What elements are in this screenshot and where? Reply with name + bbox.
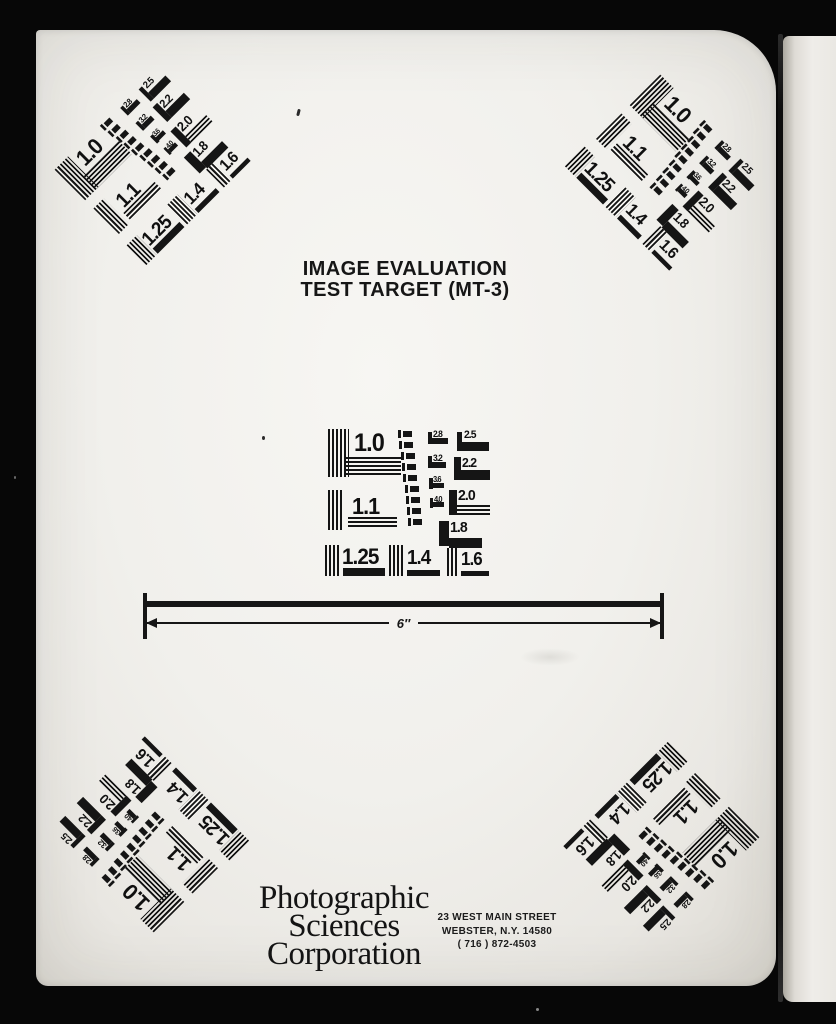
micro-target bbox=[401, 452, 404, 460]
address-line2: WEBSTER, N.Y. 14580 bbox=[397, 925, 597, 939]
micro-target bbox=[684, 147, 694, 157]
resolution-target-label: 2.8 bbox=[433, 430, 442, 439]
target-horizontal-stripes bbox=[462, 442, 489, 451]
address-line1: 23 WEST MAIN STREET bbox=[397, 911, 597, 925]
page-title-line2: TEST TARGET (MT-3) bbox=[205, 280, 605, 301]
scale-bar-arrow: 6″ bbox=[146, 616, 661, 630]
micro-target bbox=[407, 464, 416, 470]
micro-target bbox=[402, 463, 405, 471]
micro-target bbox=[408, 475, 417, 481]
micro-target bbox=[408, 518, 411, 526]
resolution-target-label: 1.6 bbox=[461, 550, 482, 568]
micro-target bbox=[166, 167, 176, 177]
micro-target bbox=[111, 124, 121, 134]
micro-target bbox=[405, 485, 408, 493]
target-horizontal-stripes bbox=[407, 570, 440, 576]
scale-bar-label: 6″ bbox=[389, 617, 418, 630]
target-vertical-stripes bbox=[439, 521, 449, 546]
company-address: 23 WEST MAIN STREET WEBSTER, N.Y. 14580 … bbox=[397, 911, 597, 952]
scan-speck bbox=[536, 1008, 539, 1011]
resolution-target-label: 2.2 bbox=[462, 456, 476, 469]
micro-target bbox=[672, 163, 682, 173]
resolution-target-label: 1.8 bbox=[450, 520, 467, 535]
page-title-line1: IMAGE EVALUATION bbox=[205, 259, 605, 280]
page-title: IMAGE EVALUATION TEST TARGET (MT-3) bbox=[205, 259, 605, 301]
target-horizontal-stripes bbox=[346, 457, 401, 477]
micro-target bbox=[410, 486, 419, 492]
resolution-target-label: 1.4 bbox=[407, 548, 430, 568]
micro-target bbox=[135, 142, 145, 152]
micro-target bbox=[691, 139, 701, 149]
test-pattern-center: 1.01.11.251.41.62.52.22.01.82.83.23.64.0 bbox=[325, 426, 493, 576]
resolution-target-label: 2.5 bbox=[464, 430, 476, 441]
micro-target bbox=[677, 861, 687, 871]
target-horizontal-stripes bbox=[461, 571, 489, 576]
micro-target bbox=[666, 171, 676, 181]
target-vertical-stripes bbox=[389, 545, 405, 576]
resolution-target-label: 4.0 bbox=[434, 496, 442, 504]
micro-target bbox=[151, 155, 161, 165]
micro-target bbox=[638, 831, 648, 841]
micro-target bbox=[119, 130, 129, 140]
micro-target bbox=[404, 442, 413, 448]
resolution-target-label: 1.1 bbox=[352, 495, 379, 518]
micro-target bbox=[662, 849, 672, 859]
scale-bar-line bbox=[146, 601, 661, 607]
micro-target bbox=[697, 131, 707, 141]
resolution-target-label: 1.0 bbox=[354, 431, 384, 456]
resolution-target-label: 1.25 bbox=[342, 546, 378, 568]
micro-target bbox=[399, 441, 402, 449]
micro-target bbox=[398, 430, 401, 438]
scan-smudge bbox=[520, 648, 580, 666]
micro-target bbox=[654, 843, 664, 853]
micro-target bbox=[406, 453, 415, 459]
micro-target bbox=[646, 837, 656, 847]
target-vertical-stripes bbox=[447, 548, 459, 576]
micro-target bbox=[660, 178, 670, 188]
target-horizontal-stripes bbox=[461, 470, 490, 480]
adjacent-page-edge bbox=[783, 36, 836, 1002]
micro-target bbox=[403, 431, 412, 437]
right-arrow-icon bbox=[418, 622, 661, 624]
target-horizontal-stripes bbox=[457, 505, 490, 516]
micro-target bbox=[158, 161, 168, 171]
micro-target bbox=[701, 880, 711, 890]
target-horizontal-stripes bbox=[343, 568, 385, 576]
resolution-target-label: 2.0 bbox=[458, 488, 475, 503]
scanned-test-target-page: 1.01.11.251.41.62.52.22.01.82.83.23.64.0… bbox=[0, 0, 836, 1024]
target-vertical-stripes bbox=[328, 490, 344, 530]
micro-target bbox=[670, 855, 680, 865]
micro-target bbox=[693, 874, 703, 884]
micro-target bbox=[407, 507, 410, 515]
target-vertical-stripes bbox=[454, 457, 461, 480]
resolution-target-label: 3.2 bbox=[433, 454, 442, 463]
target-vertical-stripes bbox=[449, 490, 457, 515]
micro-target bbox=[406, 496, 409, 504]
scale-bar: 6″ bbox=[143, 593, 664, 641]
micro-target bbox=[654, 186, 664, 196]
address-line3: ( 716 ) 872-4503 bbox=[397, 938, 597, 952]
micro-target bbox=[127, 136, 137, 146]
micro-target bbox=[104, 118, 114, 128]
left-arrow-icon bbox=[146, 622, 389, 624]
micro-target bbox=[412, 508, 421, 514]
micro-target bbox=[703, 124, 713, 134]
micro-target bbox=[685, 868, 695, 878]
micro-target bbox=[403, 474, 406, 482]
micro-target bbox=[413, 519, 422, 525]
scan-speck bbox=[262, 436, 265, 440]
micro-target bbox=[678, 155, 688, 165]
resolution-target-label: 3.6 bbox=[433, 476, 441, 484]
micro-target bbox=[143, 148, 153, 158]
micro-target bbox=[411, 497, 420, 503]
scan-speck bbox=[14, 476, 16, 479]
target-horizontal-stripes bbox=[449, 538, 482, 548]
target-vertical-stripes bbox=[325, 545, 341, 576]
